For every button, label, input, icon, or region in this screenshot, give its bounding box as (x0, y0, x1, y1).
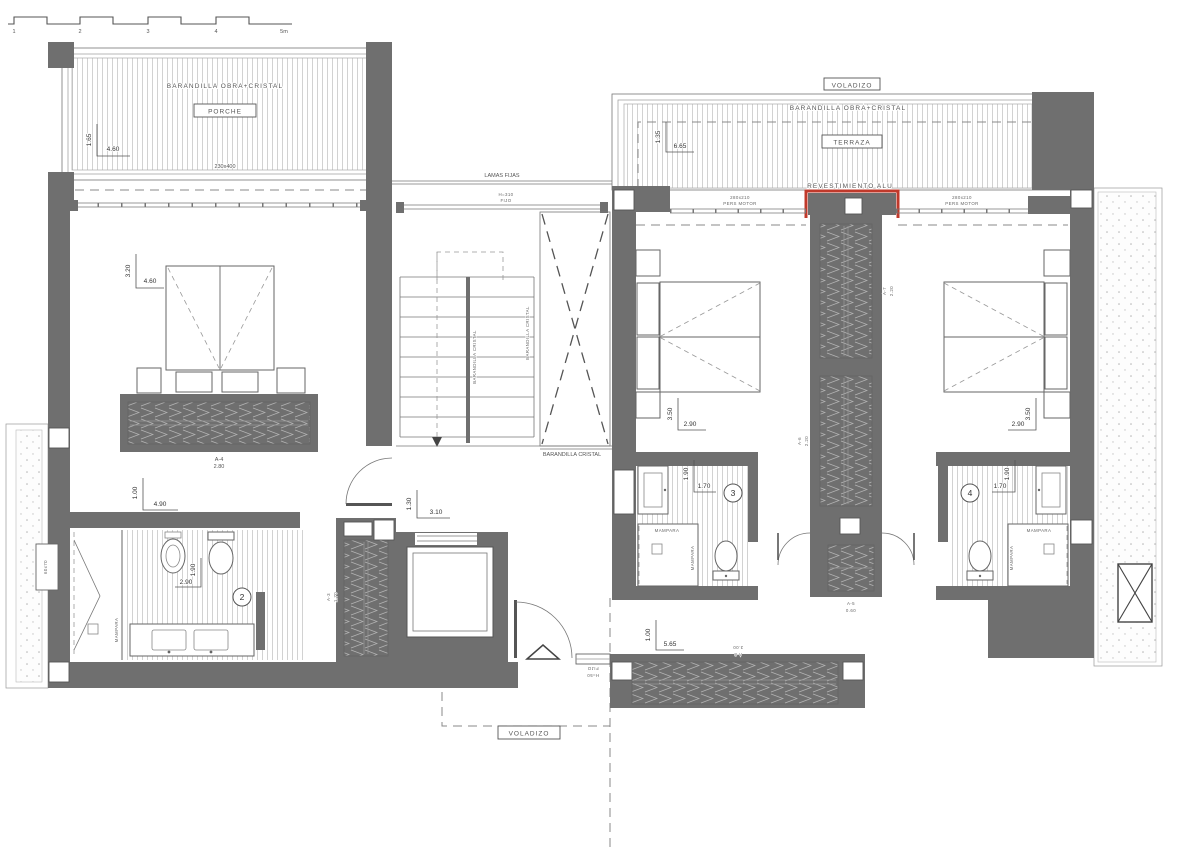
bathroom-4: 1.90 1.70 4 MAMPARA MAMPARA (948, 460, 1068, 586)
porch-terrace: BARANDILLA OBRA+CRISTAL PORCHE 1.65 4.60… (48, 42, 392, 200)
bath2-dim-offset: 1.00 (132, 486, 139, 499)
toilet (208, 532, 234, 574)
bathroom-3: 1.90 1.70 3 MAMPARA MAMPARA (636, 460, 748, 586)
bath2-dim-width: 2.90 (180, 579, 193, 586)
bed4-dim-width: 2.90 (1012, 421, 1025, 428)
bed-4 (944, 250, 1070, 418)
master-bed (137, 266, 305, 393)
shutter-right-size: 280x210 (952, 195, 972, 200)
bottom-closet-code: A-8 (734, 652, 742, 657)
terrace-pillar-ne (1032, 92, 1094, 190)
bath4-toilet (967, 541, 993, 580)
bath3-mampara-side: MAMPARA (690, 546, 695, 571)
bed3-dim-width: 2.90 (684, 421, 697, 428)
void-rail-label: BARANDILLA CRISTAL (543, 452, 601, 458)
bottom-closet-length: 3.00 (733, 645, 743, 650)
nightstand (1044, 392, 1070, 418)
nightstand (137, 368, 161, 393)
bedroom-3: 3.50 2.90 (636, 250, 760, 430)
stair-stringer (466, 277, 470, 443)
wardrobe-a6-code: A-6 (797, 437, 802, 445)
terrace-room-label: TERRAZA (833, 140, 870, 147)
chimney-x-box (1118, 564, 1152, 622)
bath4-mampara-top: MAMPARA (1027, 528, 1052, 533)
svg-text:4: 4 (968, 488, 973, 498)
nightstand (636, 250, 660, 276)
svg-text:VOLADIZO: VOLADIZO (509, 731, 550, 738)
bath3-shower: MAMPARA MAMPARA (638, 524, 698, 586)
nightstand (636, 392, 660, 418)
pillow (222, 372, 258, 392)
nightstand (277, 368, 305, 393)
pillow (637, 283, 659, 335)
bath2-window: 60x70 (36, 544, 58, 590)
bath3-number-badge: 3 (724, 484, 742, 502)
h310-label: H=310 (498, 192, 513, 197)
bath4-number-badge: 4 (961, 484, 979, 502)
bath2-window-size: 60x70 (43, 560, 48, 574)
scale-tick-1: 1 (12, 29, 15, 35)
svg-text:2: 2 (240, 592, 245, 602)
pillow (1045, 337, 1067, 389)
porch-room-label: PORCHE (208, 109, 242, 116)
entry-window-height: H=50 (587, 673, 599, 678)
bath2-dim-width-top: 4.90 (154, 501, 167, 508)
stair-direction-arrow (432, 437, 442, 447)
porch-railing-label: BARANDILLA OBRA+CRISTAL (167, 83, 283, 90)
master-door (346, 458, 392, 506)
svg-text:3: 3 (731, 488, 736, 498)
wardrobe-a3-length: 1.70 (333, 592, 338, 602)
bath3-toilet (713, 541, 739, 580)
shower-drain (88, 624, 98, 634)
terrace-dim-width: 6.65 (674, 143, 687, 150)
closet-a5-code: A-5 (847, 601, 855, 606)
bath4-dim-depth: 1.90 (1004, 467, 1011, 480)
wardrobe-a6-length: 2.20 (804, 436, 809, 446)
bottom-wardrobe: A-8 3.00 1.00 5.65 (632, 620, 838, 704)
pillow (1045, 283, 1067, 335)
lamas-fijas-label: LAMAS FIJAS (484, 173, 519, 179)
bath4-dim-width: 1.70 (994, 483, 1007, 490)
floor-plan-canvas: 1 2 3 4 5m BARANDILLA OBRA+CRISTAL PORCH… (0, 0, 1200, 850)
shutter-left-size: 280x210 (730, 195, 750, 200)
nightstand (1044, 250, 1070, 276)
scale-tick-3: 3 (146, 29, 149, 35)
scale-bar: 1 2 3 4 5m (8, 17, 292, 35)
bath2-door-leaf (256, 592, 265, 650)
stair-rail-label-right: BARANDILLA CRISTAL (525, 306, 530, 360)
bath2-mampara-label: MAMPARA (114, 618, 119, 643)
porch-dim-depth: 1.65 (86, 133, 93, 146)
bidet (161, 532, 185, 573)
terrace: VOLADIZO BARANDILLA OBRA+CRISTAL 1.35 6.… (612, 78, 1094, 190)
elevator (407, 533, 493, 637)
master-dim-width: 4.60 (144, 278, 157, 285)
shutter-left-type: PERS MOTOR (723, 201, 756, 206)
hall-dim-offset: 1.30 (406, 497, 413, 510)
bottom-dim-width: 5.65 (664, 641, 677, 648)
wardrobe-a4-length: 2.80 (214, 464, 225, 470)
scale-tick-5m: 5m (280, 29, 288, 35)
wardrobe-a7-length: 2.20 (889, 286, 894, 296)
bath3-dim-width: 1.70 (698, 483, 711, 490)
stairs: BARANDILLA CRISTAL BARANDILLA CRISTAL (400, 252, 534, 447)
bottom-dim-offset: 1.00 (645, 628, 652, 641)
bath2-number-badge: 2 (233, 588, 251, 606)
bed4-dim-depth: 3.50 (1025, 407, 1032, 420)
hall-dim-width: 3.10 (430, 509, 443, 516)
entry-triangle-marker (527, 645, 559, 659)
bath3-door (778, 533, 810, 565)
stair-rail-label-left: BARANDILLA CRISTAL (472, 330, 477, 384)
h310-fijo-label: FIJO (500, 198, 511, 203)
bed-3 (636, 250, 760, 418)
closet-a5-length: 0.60 (846, 608, 856, 613)
wardrobe-a7 (820, 224, 872, 358)
bath4-door (882, 533, 914, 565)
bath3-dim-depth: 1.90 (683, 467, 690, 480)
wardrobe-a4: A-4 2.80 (120, 394, 318, 470)
master-dim-depth: 3.20 (125, 264, 132, 277)
porch-pillar-nw (48, 42, 74, 68)
terrace-voladizo-label: VOLADIZO (832, 83, 873, 90)
bedroom-4: 3.50 2.90 (944, 250, 1070, 430)
wardrobe-a3-code: A-3 (326, 593, 331, 601)
floor-plan-drawing: 1 2 3 4 5m BARANDILLA OBRA+CRISTAL PORCH… (0, 0, 1200, 850)
shutter-right-type: PERS MOTOR (945, 201, 978, 206)
bath4-mampara-side: MAMPARA (1009, 546, 1014, 571)
wardrobe-a7-code: A-7 (882, 287, 887, 295)
bath4-sink (1036, 466, 1066, 514)
pillow (176, 372, 212, 392)
bath2-shower (74, 532, 100, 656)
porch-window-size: 230x400 (214, 164, 235, 170)
wardrobe-a4-code: A-4 (215, 457, 224, 463)
right-gravel-strip (1094, 188, 1162, 666)
master-bedroom: 3.20 4.60 A-4 2.80 (120, 254, 392, 506)
double-height-void: BARANDILLA CRISTAL (396, 212, 612, 458)
bath3-sink (638, 466, 668, 514)
cladding-label: REVESTIMIENTO ALU (807, 183, 893, 190)
bed3-dim-depth: 3.50 (667, 407, 674, 420)
voladizo-bottom-label: VOLADIZO (498, 726, 560, 739)
corridor-closets: A-7 2.20 A-6 2.20 A-5 0.60 (778, 224, 914, 613)
pillow (637, 337, 659, 389)
scale-tick-4: 4 (214, 29, 217, 35)
entry-door: H=50 FIJO (514, 600, 610, 678)
bath2-vanity (130, 624, 254, 656)
porch-dim-width: 4.60 (107, 146, 120, 153)
terrace-railing-label: BARANDILLA OBRA+CRISTAL (790, 105, 906, 112)
entry-window-type: FIJO (587, 666, 598, 671)
wardrobe-a6 (820, 376, 872, 506)
shower-drain (1044, 544, 1054, 554)
bathroom-2: 1.00 4.90 MAMPARA 60x70 2.90 1.90 2 (36, 478, 306, 660)
terrace-dim-depth: 1.35 (655, 130, 662, 143)
bath4-shower: MAMPARA MAMPARA (1008, 524, 1068, 586)
scale-tick-2: 2 (78, 29, 81, 35)
bath2-dim-depth: 1.90 (190, 563, 197, 576)
shower-drain (652, 544, 662, 554)
bath3-mampara-top: MAMPARA (655, 528, 680, 533)
